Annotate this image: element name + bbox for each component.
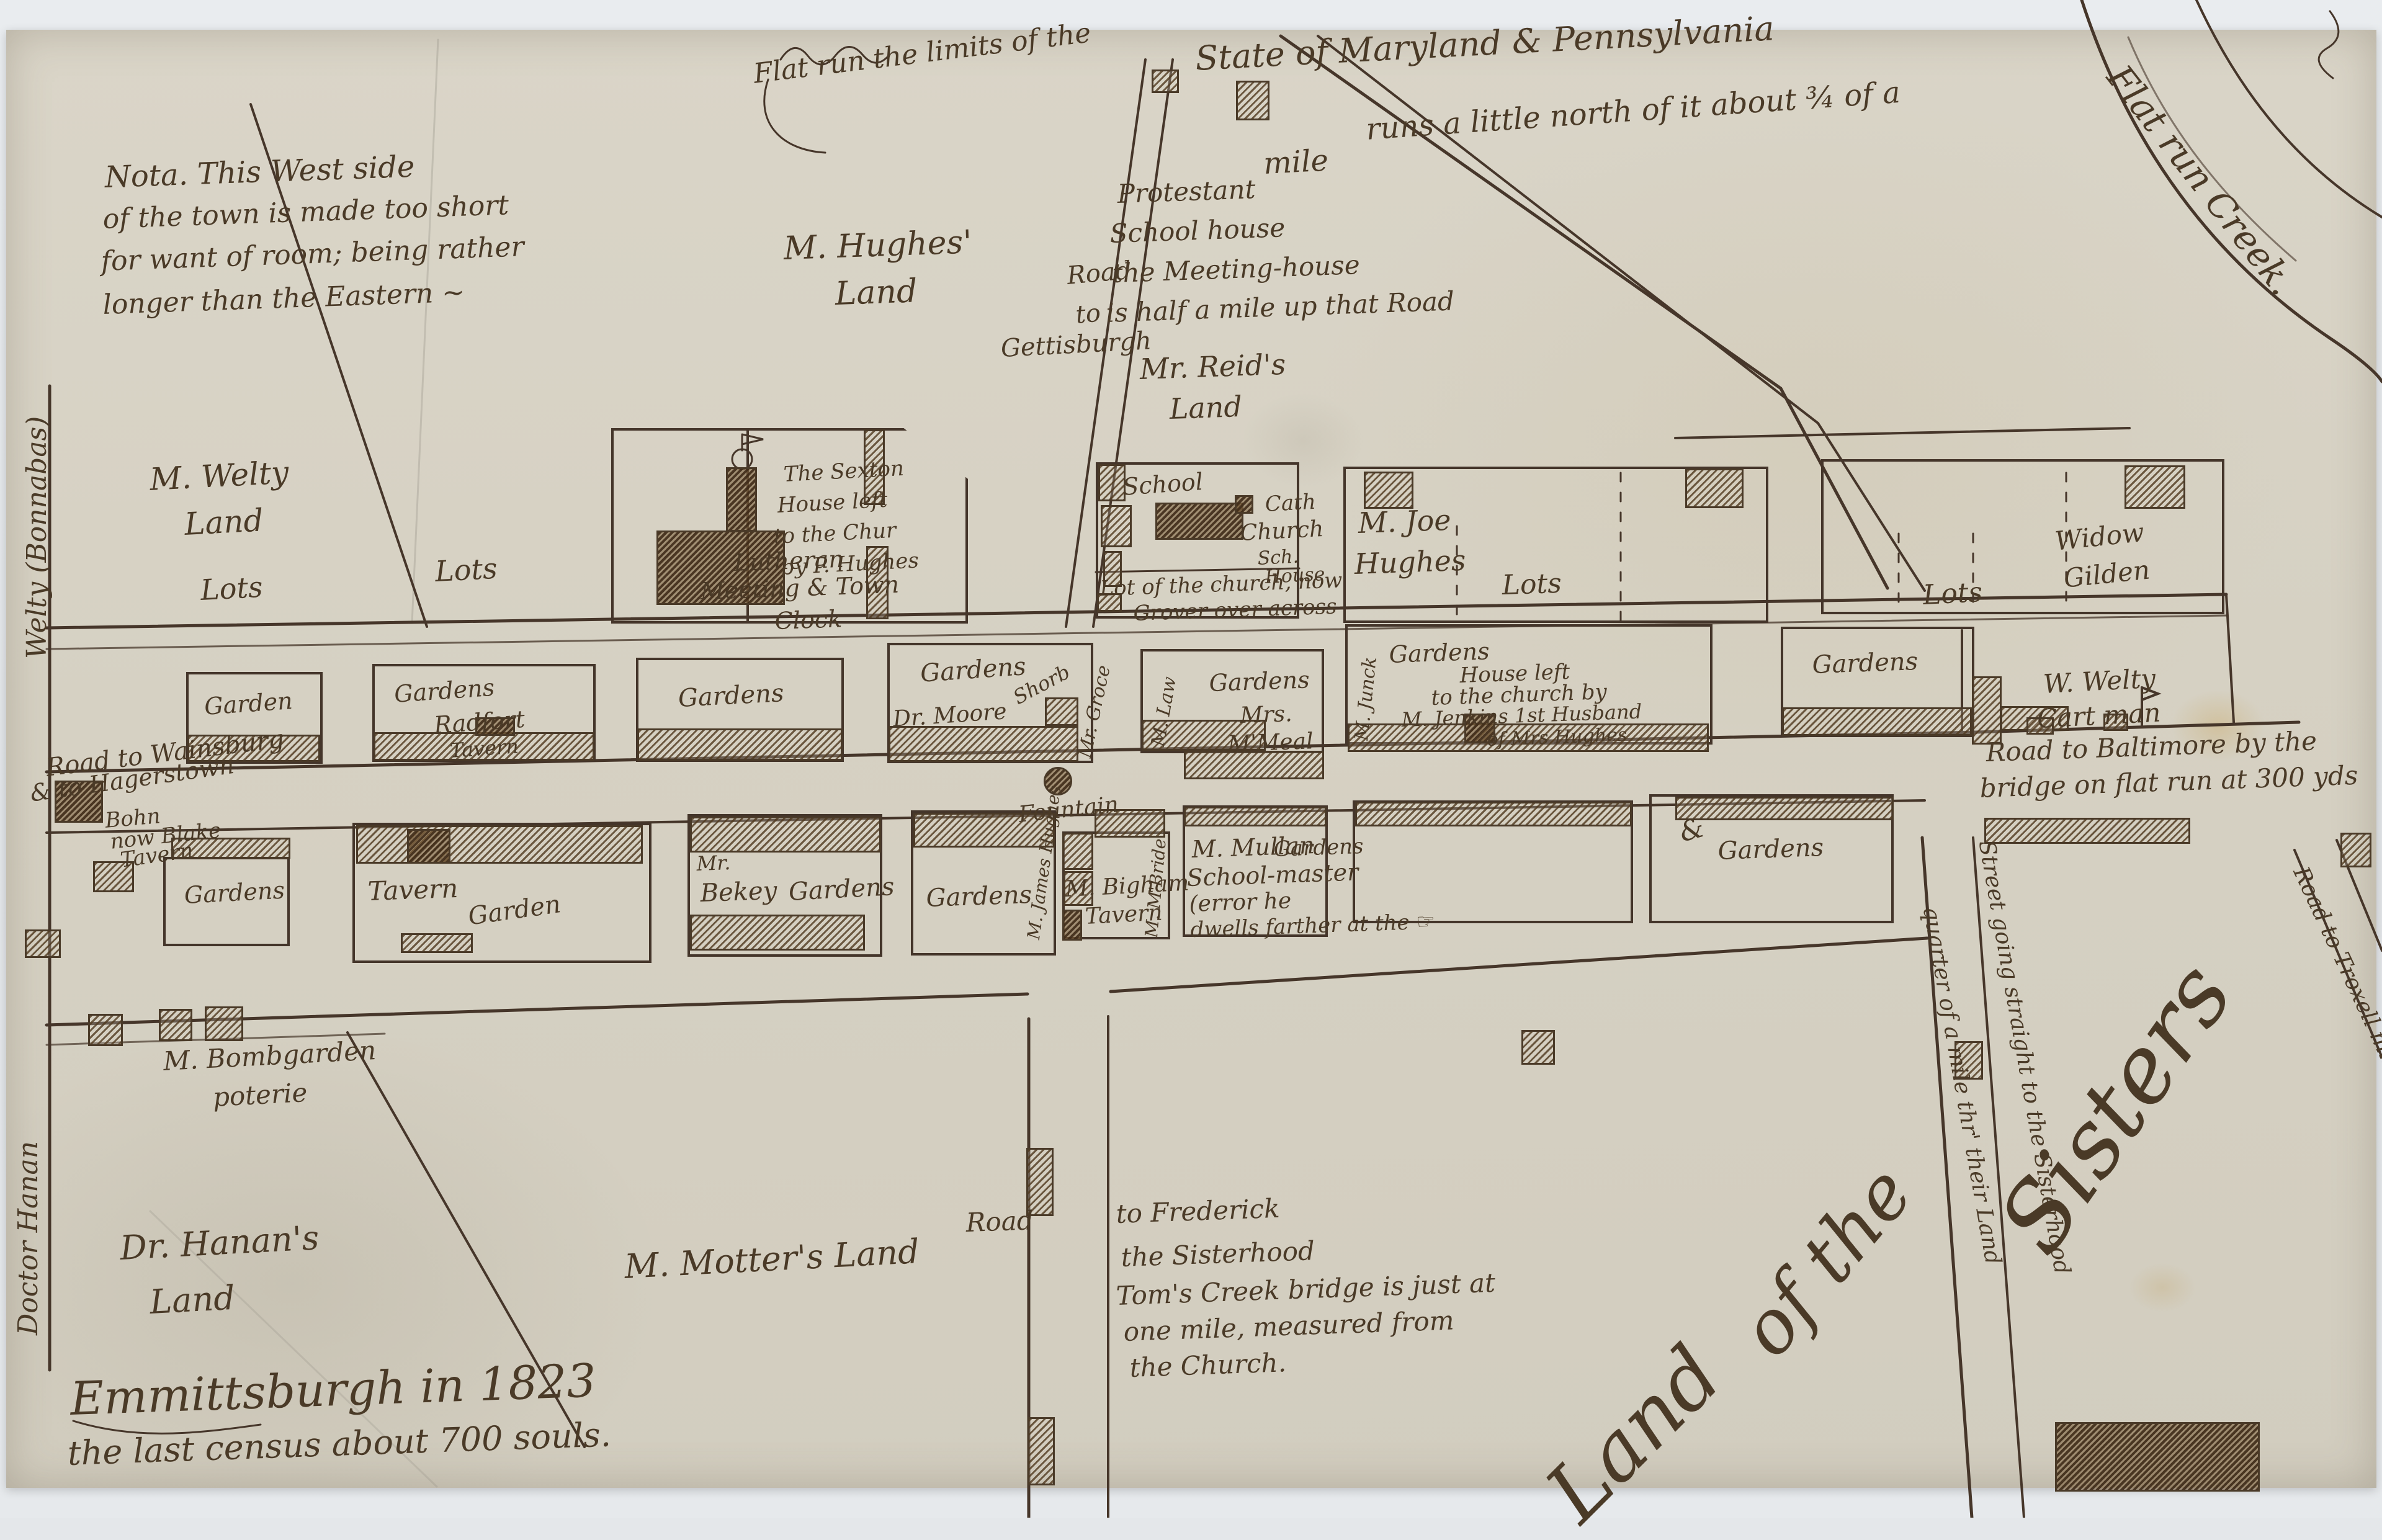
building xyxy=(2125,465,2185,509)
bigham-building xyxy=(1062,833,1093,870)
label-gardens: Gardens xyxy=(1717,835,1824,864)
lot-boundary-top-right xyxy=(1675,428,2129,438)
label-hanan-land: Land xyxy=(149,1281,236,1319)
bombgarden-pottery xyxy=(205,1006,243,1041)
building xyxy=(2340,833,2371,867)
catholic-church-building xyxy=(1155,503,1243,540)
label-church-lot: Grover over across xyxy=(1133,596,1337,624)
label-joe-hughes: M. Joe xyxy=(1358,506,1451,537)
paper-crease xyxy=(412,40,438,623)
building xyxy=(25,929,61,958)
building xyxy=(1521,1030,1555,1065)
label-gardens-mmeal: Mrs. xyxy=(1240,703,1292,727)
street-east-end xyxy=(2226,594,2234,722)
school-building xyxy=(1098,464,1126,501)
label-w-welty: Cart man xyxy=(2036,700,2161,732)
label-tavern-garden: Tavern xyxy=(367,875,459,905)
land-label-reid: Mr. Reid's xyxy=(1139,350,1286,383)
building xyxy=(407,829,450,864)
label-mullan: School-master xyxy=(1186,860,1359,890)
label-gardens-radfort: Radfort xyxy=(433,707,526,737)
label-bekey: Mr. xyxy=(696,853,731,874)
row2-frontage xyxy=(1675,797,1894,820)
label-hanan-land: Dr. Hanan's xyxy=(119,1221,320,1265)
bombgarden-pottery xyxy=(159,1009,192,1041)
land-label-welty-edge: Welty (Bonnabas) xyxy=(24,416,51,659)
label-bekey: Bekey xyxy=(700,879,777,906)
bombgarden-pottery xyxy=(88,1014,123,1046)
label-doctor-hanan-edge: Doctor Hanan xyxy=(15,1141,42,1335)
land-label-welty: Land xyxy=(184,504,264,540)
land-label-lots-east: Lots xyxy=(434,554,498,586)
row2-frontage xyxy=(1184,807,1327,826)
label-w-welty: W. Welty xyxy=(2043,666,2156,697)
label-sexton: House left xyxy=(777,490,888,516)
street-south xyxy=(47,994,1028,1025)
land-label-reid: Land xyxy=(1169,392,1243,423)
label-gardens-radfort: Gardens xyxy=(393,676,495,706)
label-bekey: Gardens xyxy=(788,874,895,905)
label-joe-hughes: Hughes xyxy=(1354,546,1466,578)
building xyxy=(1152,69,1179,93)
road-label-gettysburgh: to xyxy=(1075,301,1101,328)
label-bombgarden: poterie xyxy=(212,1080,308,1111)
road-label-frederick: the Sisterhood xyxy=(1121,1238,1315,1271)
label-cath-church: Church xyxy=(1240,518,1324,545)
road-label-gettysburgh: Gettisburgh xyxy=(1000,328,1152,361)
label-garden: Garden xyxy=(204,689,293,719)
road-label-gettysburgh: Road xyxy=(1066,258,1132,289)
row1-frontage xyxy=(1782,707,1972,736)
road-label-frederick: the Church. xyxy=(1129,1350,1287,1381)
row2-rear-building xyxy=(690,915,865,951)
label-gardens: Gardens xyxy=(926,882,1032,911)
welty-corner-building xyxy=(1972,676,2002,745)
label-cath-church: Cath xyxy=(1265,491,1317,515)
label-gilden-lots: Lots xyxy=(1922,579,1983,609)
label-protestant-school: School house xyxy=(1109,215,1286,247)
row2-rear-building xyxy=(401,933,473,953)
label-mullan: Gardens xyxy=(1273,836,1364,860)
row2-frontage xyxy=(690,817,881,853)
label-mullan: (error he xyxy=(1189,890,1292,916)
label-gardens: Gardens xyxy=(184,879,285,907)
frontage-baltimore xyxy=(1984,818,2190,844)
label-gardens: Gardens xyxy=(678,681,784,711)
building xyxy=(1028,1417,1055,1485)
row1-frontage xyxy=(889,726,1078,762)
label-state-line: mile xyxy=(1263,146,1329,179)
label-protestant-school: Protestant xyxy=(1117,176,1256,207)
label-gardens-radfort: Tavern xyxy=(449,736,519,761)
row2-frontage xyxy=(356,825,643,864)
label-gardens-mmeal: M'Meal xyxy=(1227,730,1314,756)
label-school: School xyxy=(1122,470,1204,499)
label-gardens-jenkins: of Mrs Hughes xyxy=(1487,726,1628,750)
building xyxy=(1062,910,1082,941)
street-south xyxy=(1111,938,1927,992)
road-label-frederick: Road xyxy=(965,1207,1034,1236)
building xyxy=(1045,697,1078,726)
church-school-house xyxy=(1235,495,1253,514)
land-label-welty: M. Welty xyxy=(149,457,290,495)
road-label-frederick: to Frederick xyxy=(1116,1196,1280,1227)
building xyxy=(1236,81,1269,120)
label-gardens: Gardens xyxy=(1812,649,1919,678)
label-gardens-moore: Gardens xyxy=(920,654,1027,686)
label-gardens-mmeal: Gardens xyxy=(1209,668,1310,695)
row1-frontage xyxy=(637,728,843,761)
sisters-building xyxy=(2055,1422,2260,1492)
label-bigham: M. Bigham xyxy=(1065,872,1189,901)
label-sexton: The Sexton xyxy=(783,458,905,485)
map-photo: { "colors": {"paper":"#d6d1c3","ink":"#4… xyxy=(0,0,2382,1518)
land-label-hughes: M. Hughes' xyxy=(783,226,972,265)
building xyxy=(1685,468,1744,508)
land-label-hughes: Land xyxy=(835,275,918,310)
label-lutheran: Clock xyxy=(774,607,843,633)
school-building xyxy=(1101,505,1132,547)
creek-squiggle xyxy=(2319,11,2339,78)
label-sexton: to the Chur xyxy=(773,520,897,547)
building xyxy=(1364,472,1413,509)
row2-frontage xyxy=(1355,802,1632,826)
land-label-welty-lots: Lots xyxy=(200,573,264,604)
lutheran-tower xyxy=(726,467,757,532)
label-joe-hughes: Lots xyxy=(1502,570,1562,599)
flat-run-squiggle xyxy=(764,79,825,153)
